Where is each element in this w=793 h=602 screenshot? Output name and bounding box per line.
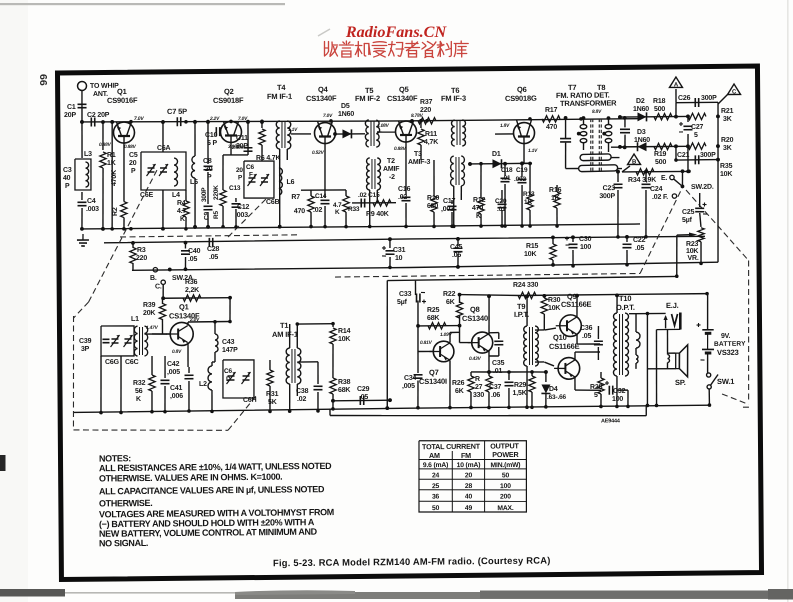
svg-text:SW.1: SW.1 xyxy=(717,377,734,386)
svg-text:D3: D3 xyxy=(637,129,646,136)
svg-text:R39: R39 xyxy=(143,302,156,309)
svg-text:500: 500 xyxy=(655,159,666,166)
svg-text:220: 220 xyxy=(420,107,431,114)
svg-text:C26: C26 xyxy=(678,95,691,102)
svg-text:.06: .06 xyxy=(491,392,501,399)
svg-text:680: 680 xyxy=(427,203,438,210)
svg-text:300P: 300P xyxy=(201,187,208,202)
svg-text:CS9018F: CS9018F xyxy=(213,96,244,105)
svg-text:4.7: 4.7 xyxy=(177,208,187,215)
svg-text:100: 100 xyxy=(500,483,511,490)
svg-text:AM IF-1: AM IF-1 xyxy=(272,330,298,339)
svg-text:470: 470 xyxy=(294,208,305,215)
svg-text:.02: .02 xyxy=(297,396,307,403)
svg-text:147P: 147P xyxy=(222,347,238,354)
svg-text:R32: R32 xyxy=(133,380,146,387)
svg-text:1N60: 1N60 xyxy=(338,111,354,118)
svg-text:R33: R33 xyxy=(348,206,360,213)
svg-text:6K: 6K xyxy=(446,299,455,306)
svg-text:100: 100 xyxy=(612,396,623,403)
svg-text:0.52V: 0.52V xyxy=(312,150,325,156)
svg-text:5µf: 5µf xyxy=(682,217,693,224)
svg-text:470: 470 xyxy=(472,205,483,212)
svg-text:C4: C4 xyxy=(87,198,96,205)
svg-text:5: 5 xyxy=(694,132,698,139)
svg-text:,005: ,005 xyxy=(167,369,180,376)
svg-text:.05: .05 xyxy=(188,256,198,263)
svg-text:68K: 68K xyxy=(427,315,439,322)
svg-text:8.8V: 8.8V xyxy=(592,109,602,115)
svg-text:3P: 3P xyxy=(81,346,90,353)
svg-text:C41: C41 xyxy=(170,385,183,392)
svg-text:.02: .02 xyxy=(398,194,408,201)
svg-text:C32: C32 xyxy=(613,388,626,395)
svg-text:10K: 10K xyxy=(338,336,350,343)
svg-text:4.7: 4.7 xyxy=(333,202,342,209)
svg-text:C6E: C6E xyxy=(140,192,154,199)
svg-text:C27: C27 xyxy=(691,124,704,131)
svg-text:R30: R30 xyxy=(548,297,561,304)
svg-text:R: R xyxy=(475,376,480,383)
svg-text:.63-.66: .63-.66 xyxy=(547,394,567,401)
svg-text:CS1340I: CS1340I xyxy=(462,314,490,323)
svg-text:C29: C29 xyxy=(357,386,370,393)
svg-text:Q1: Q1 xyxy=(117,87,127,96)
svg-text:C35: C35 xyxy=(492,360,505,367)
svg-text:C6B: C6B xyxy=(266,199,280,206)
svg-text:R28: R28 xyxy=(590,384,603,391)
svg-text:.002: .002 xyxy=(514,176,527,183)
svg-text:O.P.T.: O.P.T. xyxy=(616,303,635,312)
svg-text:25: 25 xyxy=(432,483,440,490)
svg-text:10K: 10K xyxy=(524,251,536,258)
svg-text:CS1340F: CS1340F xyxy=(387,94,418,103)
svg-text:C42: C42 xyxy=(167,361,180,368)
svg-text:FM IF-3: FM IF-3 xyxy=(441,94,466,103)
svg-text:R2: R2 xyxy=(112,207,119,216)
svg-text:56: 56 xyxy=(135,388,143,395)
svg-text:1,5K: 1,5K xyxy=(512,390,526,397)
svg-text:SP.: SP. xyxy=(675,378,686,387)
svg-text:9V.: 9V. xyxy=(721,333,731,340)
svg-text:.05: .05 xyxy=(582,333,592,340)
svg-text:L1: L1 xyxy=(131,316,139,323)
svg-text:C14: C14 xyxy=(315,193,327,200)
svg-text:0.43V: 0.43V xyxy=(469,356,482,362)
svg-text:C6: C6 xyxy=(224,368,233,375)
svg-text:AE9444: AE9444 xyxy=(601,418,621,424)
svg-text:P: P xyxy=(131,168,136,175)
svg-text:5µf: 5µf xyxy=(397,299,408,306)
svg-text:C13: C13 xyxy=(229,185,241,192)
svg-text:R31: R31 xyxy=(266,391,279,398)
svg-text:R36: R36 xyxy=(185,279,198,286)
svg-text:C28: C28 xyxy=(207,246,220,253)
svg-text:C37: C37 xyxy=(489,384,502,391)
svg-text:NO SIGNAL.: NO SIGNAL. xyxy=(99,538,148,548)
svg-text:C33: C33 xyxy=(399,291,412,298)
svg-text:C40: C40 xyxy=(188,248,201,255)
svg-text:R34 3,9K: R34 3,9K xyxy=(628,177,656,184)
svg-text:.05: .05 xyxy=(359,394,369,401)
svg-text:2,2K: 2,2K xyxy=(185,287,199,294)
svg-text:CS1340I: CS1340I xyxy=(419,377,447,386)
svg-text:TOTAL CURRENT: TOTAL CURRENT xyxy=(422,442,481,452)
svg-text:1.08V: 1.08V xyxy=(377,123,390,129)
svg-text:C20: C20 xyxy=(495,198,507,205)
svg-text:300P: 300P xyxy=(700,152,716,159)
svg-text:10K: 10K xyxy=(548,305,560,312)
svg-text:1K: 1K xyxy=(107,160,116,167)
svg-text:L5: L5 xyxy=(190,179,198,186)
svg-text:FM: FM xyxy=(461,451,471,460)
svg-text:L4: L4 xyxy=(172,192,180,199)
svg-text:T4: T4 xyxy=(277,83,286,92)
svg-text:P: P xyxy=(65,183,70,190)
svg-text:-2: -2 xyxy=(389,174,395,181)
svg-text:,006: ,006 xyxy=(170,393,183,400)
svg-text:20: 20 xyxy=(465,472,473,479)
svg-text:AMIF: AMIF xyxy=(383,166,400,173)
svg-text:.02 C15: .02 C15 xyxy=(358,192,380,199)
svg-text:Q7: Q7 xyxy=(429,368,439,377)
svg-text:BATTERY: BATTERY xyxy=(714,341,746,348)
svg-text:C7 5P: C7 5P xyxy=(167,107,187,116)
svg-text:.003: .003 xyxy=(86,206,99,213)
svg-text:C2 20P: C2 20P xyxy=(87,112,110,119)
svg-text:5 P: 5 P xyxy=(207,140,218,147)
svg-text:R20: R20 xyxy=(721,137,734,144)
svg-text:330: 330 xyxy=(473,392,484,399)
svg-text:C11: C11 xyxy=(236,135,248,142)
svg-text:CS1166E: CS1166E xyxy=(549,342,580,351)
svg-text:R19: R19 xyxy=(654,151,667,158)
svg-text:C36: C36 xyxy=(580,325,593,332)
svg-text:C18: C18 xyxy=(501,167,513,174)
svg-text:36: 36 xyxy=(432,494,440,501)
svg-text:FM IF-1: FM IF-1 xyxy=(267,92,292,101)
svg-text:R22: R22 xyxy=(443,291,456,298)
svg-text:R16: R16 xyxy=(549,187,562,194)
svg-text:C17: C17 xyxy=(443,198,456,205)
svg-text:50: 50 xyxy=(502,472,510,479)
svg-text:220: 220 xyxy=(136,255,147,262)
svg-text:.05: .05 xyxy=(209,254,219,261)
svg-text:Q1: Q1 xyxy=(179,302,189,311)
svg-text:R21: R21 xyxy=(721,108,734,115)
svg-text:R6 4.7K: R6 4.7K xyxy=(256,155,281,162)
svg-text:C24: C24 xyxy=(650,186,663,193)
svg-text:C8: C8 xyxy=(203,158,212,165)
svg-text:Q2: Q2 xyxy=(224,87,234,96)
svg-text:C6G: C6G xyxy=(105,359,120,366)
svg-text:TRANSFORMER: TRANSFORMER xyxy=(560,98,617,108)
svg-text:49: 49 xyxy=(465,505,473,512)
svg-text:Q10: Q10 xyxy=(553,333,567,342)
svg-text:D5: D5 xyxy=(341,103,350,110)
svg-text:C12: C12 xyxy=(237,204,250,211)
svg-text:C39: C39 xyxy=(79,338,92,345)
svg-text:F: F xyxy=(249,171,253,178)
svg-text:5K: 5K xyxy=(268,399,277,406)
svg-text:D: D xyxy=(226,376,231,383)
svg-text:ANT.: ANT. xyxy=(93,91,108,98)
svg-text:AM: AM xyxy=(429,451,440,460)
svg-text:,005: ,005 xyxy=(402,383,415,390)
svg-text:L2: L2 xyxy=(199,381,207,388)
svg-text:C9: C9 xyxy=(203,211,210,220)
svg-text:4,7K: 4,7K xyxy=(424,139,438,146)
svg-text:B.: B. xyxy=(150,275,157,282)
svg-text:10 (mA): 10 (mA) xyxy=(457,462,481,469)
svg-text:L3: L3 xyxy=(84,151,92,158)
svg-text:.01: .01 xyxy=(502,175,511,182)
svg-text:Q8: Q8 xyxy=(470,305,480,314)
svg-text:L6: L6 xyxy=(286,179,294,186)
svg-text:FM IF-2: FM IF-2 xyxy=(355,94,380,103)
svg-text:0.88V: 0.88V xyxy=(124,144,137,150)
svg-text:R9 40K: R9 40K xyxy=(366,211,389,218)
svg-text:VS323: VS323 xyxy=(717,348,739,357)
svg-text:C30: C30 xyxy=(579,236,592,243)
svg-text:1.1V: 1.1V xyxy=(528,148,538,154)
svg-text:C25: C25 xyxy=(682,209,695,216)
svg-text:K: K xyxy=(180,216,185,223)
svg-text:MAX.: MAX. xyxy=(497,505,514,512)
svg-text:1K: 1K xyxy=(551,195,560,202)
svg-text:220K: 220K xyxy=(213,185,220,200)
svg-text:C6: C6 xyxy=(246,164,255,171)
svg-text:200: 200 xyxy=(500,493,511,500)
svg-text:,002: ,002 xyxy=(441,206,454,213)
svg-text:R29: R29 xyxy=(514,382,527,389)
svg-text:20P: 20P xyxy=(64,112,76,119)
svg-text:1.8V: 1.8V xyxy=(500,123,510,129)
svg-text:27: 27 xyxy=(475,384,483,391)
svg-text:D4: D4 xyxy=(549,386,558,393)
svg-text:40: 40 xyxy=(465,493,473,500)
svg-text:.003: .003 xyxy=(235,212,248,219)
svg-text:470K: 470K xyxy=(111,170,118,186)
svg-text:R11: R11 xyxy=(425,131,437,138)
svg-text:CS9018G: CS9018G xyxy=(505,94,537,103)
svg-text:9.6 (mA): 9.6 (mA) xyxy=(423,462,448,469)
svg-text:OTHERWISE.: OTHERWISE. xyxy=(99,498,152,509)
svg-text:7.0V: 7.0V xyxy=(323,113,333,119)
svg-text:T3: T3 xyxy=(414,151,422,158)
svg-text:C19: C19 xyxy=(516,167,528,174)
svg-text:R26: R26 xyxy=(452,380,465,387)
svg-text:.02: .02 xyxy=(652,194,662,201)
svg-text:C45: C45 xyxy=(450,244,463,251)
svg-text:1N60: 1N60 xyxy=(634,137,650,144)
svg-text:24: 24 xyxy=(432,472,440,479)
svg-text:.02: .02 xyxy=(313,207,323,214)
svg-text:R4: R4 xyxy=(177,200,186,207)
svg-text:0.8V: 0.8V xyxy=(172,349,182,355)
svg-text:300P: 300P xyxy=(599,193,615,200)
svg-text:10K: 10K xyxy=(720,171,732,178)
svg-text:R12: R12 xyxy=(473,197,486,204)
svg-text:6K: 6K xyxy=(455,388,464,395)
svg-text:R10: R10 xyxy=(427,195,440,202)
svg-text:R25: R25 xyxy=(427,307,440,314)
svg-text:40: 40 xyxy=(63,175,71,182)
svg-text:POWER: POWER xyxy=(492,450,519,459)
svg-text:E.J.: E.J. xyxy=(666,301,679,310)
svg-text:R14: R14 xyxy=(338,328,351,335)
svg-text:K: K xyxy=(335,209,340,216)
svg-text:R38: R38 xyxy=(338,379,351,386)
svg-text:D2: D2 xyxy=(636,98,645,105)
svg-text:VR.: VR. xyxy=(687,255,698,262)
svg-text:C5: C5 xyxy=(129,152,138,159)
svg-text:MIN.(mW): MIN.(mW) xyxy=(490,462,520,469)
svg-text:SW.2D.: SW.2D. xyxy=(691,184,714,191)
svg-text:.05: .05 xyxy=(635,245,645,252)
svg-text:R1: R1 xyxy=(107,152,116,159)
svg-text:Q5: Q5 xyxy=(399,85,409,94)
svg-text:R7: R7 xyxy=(291,194,300,201)
svg-text:C1: C1 xyxy=(67,104,76,111)
svg-text:T10: T10 xyxy=(619,294,631,303)
svg-text:20K: 20K xyxy=(143,310,155,317)
svg-text:C16: C16 xyxy=(398,186,411,193)
svg-text:R17: R17 xyxy=(545,107,558,114)
svg-text:R15: R15 xyxy=(526,243,539,250)
svg-text:R18: R18 xyxy=(653,98,666,105)
svg-text:3K: 3K xyxy=(723,145,732,152)
svg-text:TO WHIP: TO WHIP xyxy=(90,83,119,90)
svg-text:C43: C43 xyxy=(222,339,235,346)
svg-text:0.81V: 0.81V xyxy=(420,340,433,346)
svg-text:C3: C3 xyxy=(63,167,72,174)
svg-text:1N60: 1N60 xyxy=(633,106,649,113)
svg-text:C23: C23 xyxy=(603,185,616,192)
svg-text:0.88V: 0.88V xyxy=(394,146,407,152)
svg-text:0.88V: 0.88V xyxy=(99,142,112,148)
svg-text:C38: C38 xyxy=(296,388,309,395)
svg-text:CS1340F: CS1340F xyxy=(306,94,337,103)
svg-text:R13: R13 xyxy=(523,191,535,198)
svg-text:1.1V: 1.1V xyxy=(288,127,298,133)
svg-text:R37: R37 xyxy=(420,99,433,106)
svg-text:P: P xyxy=(207,174,212,181)
svg-text:10: 10 xyxy=(395,255,403,262)
svg-text:5: 5 xyxy=(594,392,598,399)
svg-text:100: 100 xyxy=(580,244,591,251)
svg-text:20: 20 xyxy=(205,166,213,173)
svg-text:C22: C22 xyxy=(633,237,646,244)
svg-text:CS9016F: CS9016F xyxy=(107,96,138,105)
svg-text:1K: 1K xyxy=(524,199,533,206)
svg-text:50: 50 xyxy=(432,505,440,512)
svg-text:K: K xyxy=(136,396,141,403)
svg-text:C6A: C6A xyxy=(157,145,171,152)
svg-text:RadioFans.CN: RadioFans.CN xyxy=(345,23,448,41)
svg-text:T2: T2 xyxy=(387,158,395,165)
svg-text:28: 28 xyxy=(465,483,473,490)
svg-text:AMIF-3: AMIF-3 xyxy=(408,159,431,166)
svg-text:66: 66 xyxy=(37,74,49,86)
svg-text:3K: 3K xyxy=(723,116,732,123)
svg-text:Q6: Q6 xyxy=(517,85,527,94)
svg-text:C31: C31 xyxy=(393,247,406,254)
svg-text:.01: .01 xyxy=(497,206,506,213)
svg-text:R5: R5 xyxy=(213,210,220,219)
svg-text:20: 20 xyxy=(129,160,137,167)
svg-text:2.2V: 2.2V xyxy=(209,116,220,122)
svg-text:Q4: Q4 xyxy=(318,85,329,94)
svg-text:R24 330: R24 330 xyxy=(513,282,539,289)
svg-text:7.0V: 7.0V xyxy=(134,116,144,122)
svg-text:OTHERWISE. VALUES ARE IN O: OTHERWISE. VALUES ARE IN OHMS. K=1000. xyxy=(99,472,282,484)
svg-text:300P: 300P xyxy=(701,95,717,102)
svg-text:CS1166E: CS1166E xyxy=(561,300,592,309)
svg-text:C6C: C6C xyxy=(125,359,139,366)
svg-text:68K: 68K xyxy=(338,387,350,394)
svg-text:3.88V: 3.88V xyxy=(228,144,241,150)
svg-text:500: 500 xyxy=(654,106,665,113)
svg-text:T1: T1 xyxy=(280,321,288,330)
svg-text:D1: D1 xyxy=(492,151,501,158)
svg-text:F.: F. xyxy=(663,194,668,201)
svg-text:C6H: C6H xyxy=(243,397,257,404)
svg-text:R3: R3 xyxy=(137,247,146,254)
svg-text:20: 20 xyxy=(236,167,244,174)
svg-text:.05: .05 xyxy=(452,252,462,259)
svg-text:E.: E. xyxy=(661,175,668,182)
svg-text:K: K xyxy=(476,213,481,220)
svg-text:R35: R35 xyxy=(720,163,733,170)
svg-text:C.: C. xyxy=(155,283,162,290)
svg-text:470: 470 xyxy=(546,124,557,131)
svg-text:C34: C34 xyxy=(404,375,417,382)
